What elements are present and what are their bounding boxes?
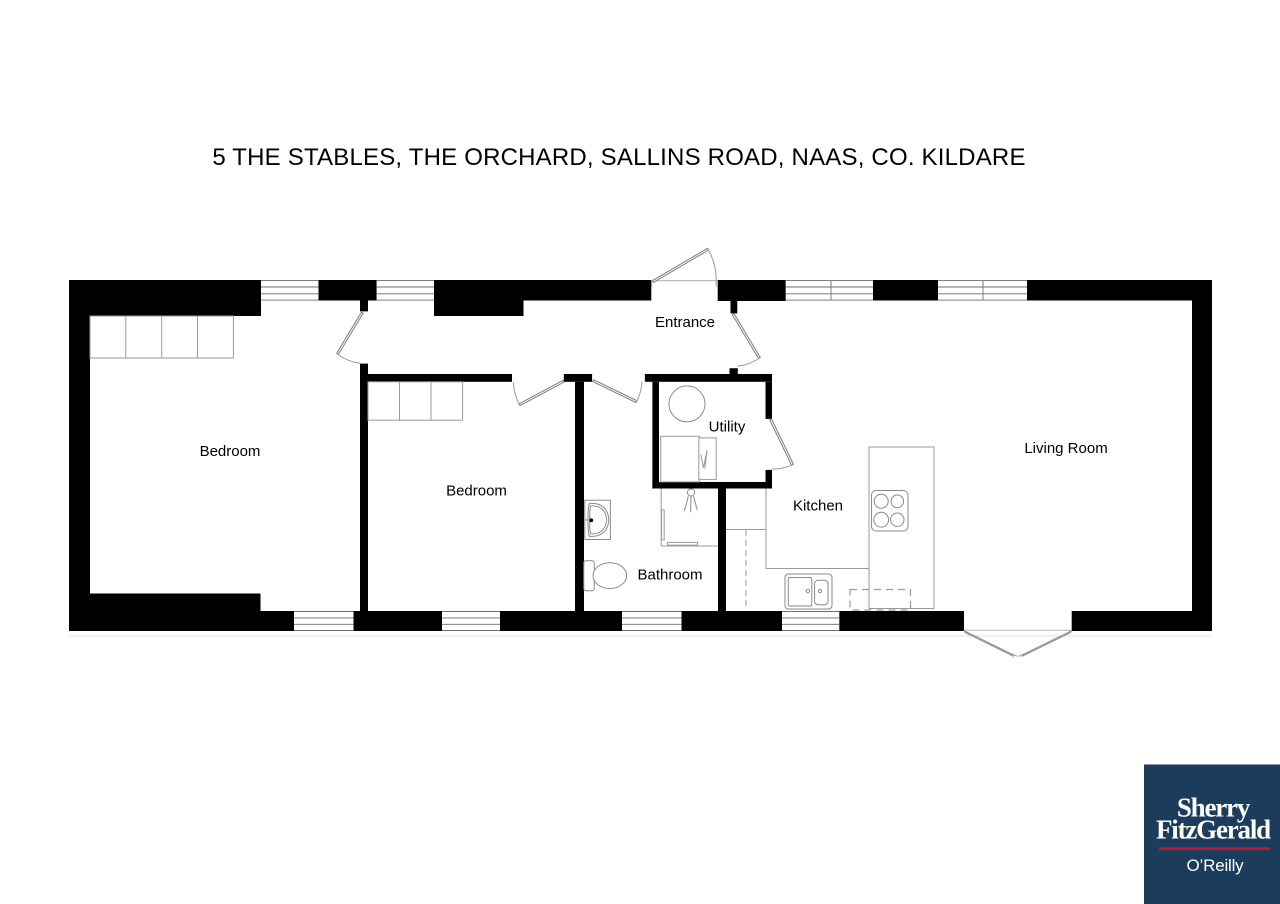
svg-text:Entrance: Entrance: [655, 314, 715, 331]
svg-text:Utility: Utility: [709, 419, 746, 436]
svg-text:O’Reilly: O’Reilly: [1187, 856, 1245, 875]
svg-text:Bathroom: Bathroom: [637, 567, 702, 584]
svg-text:5 THE STABLES, THE ORCHARD, SA: 5 THE STABLES, THE ORCHARD, SALLINS ROAD…: [212, 144, 1025, 171]
svg-text:Living Room: Living Room: [1024, 440, 1107, 457]
svg-text:Kitchen: Kitchen: [793, 498, 843, 515]
svg-text:Bedroom: Bedroom: [446, 483, 507, 500]
svg-text:Bedroom: Bedroom: [200, 443, 261, 460]
svg-text:FitzGerald: FitzGerald: [1156, 815, 1271, 845]
